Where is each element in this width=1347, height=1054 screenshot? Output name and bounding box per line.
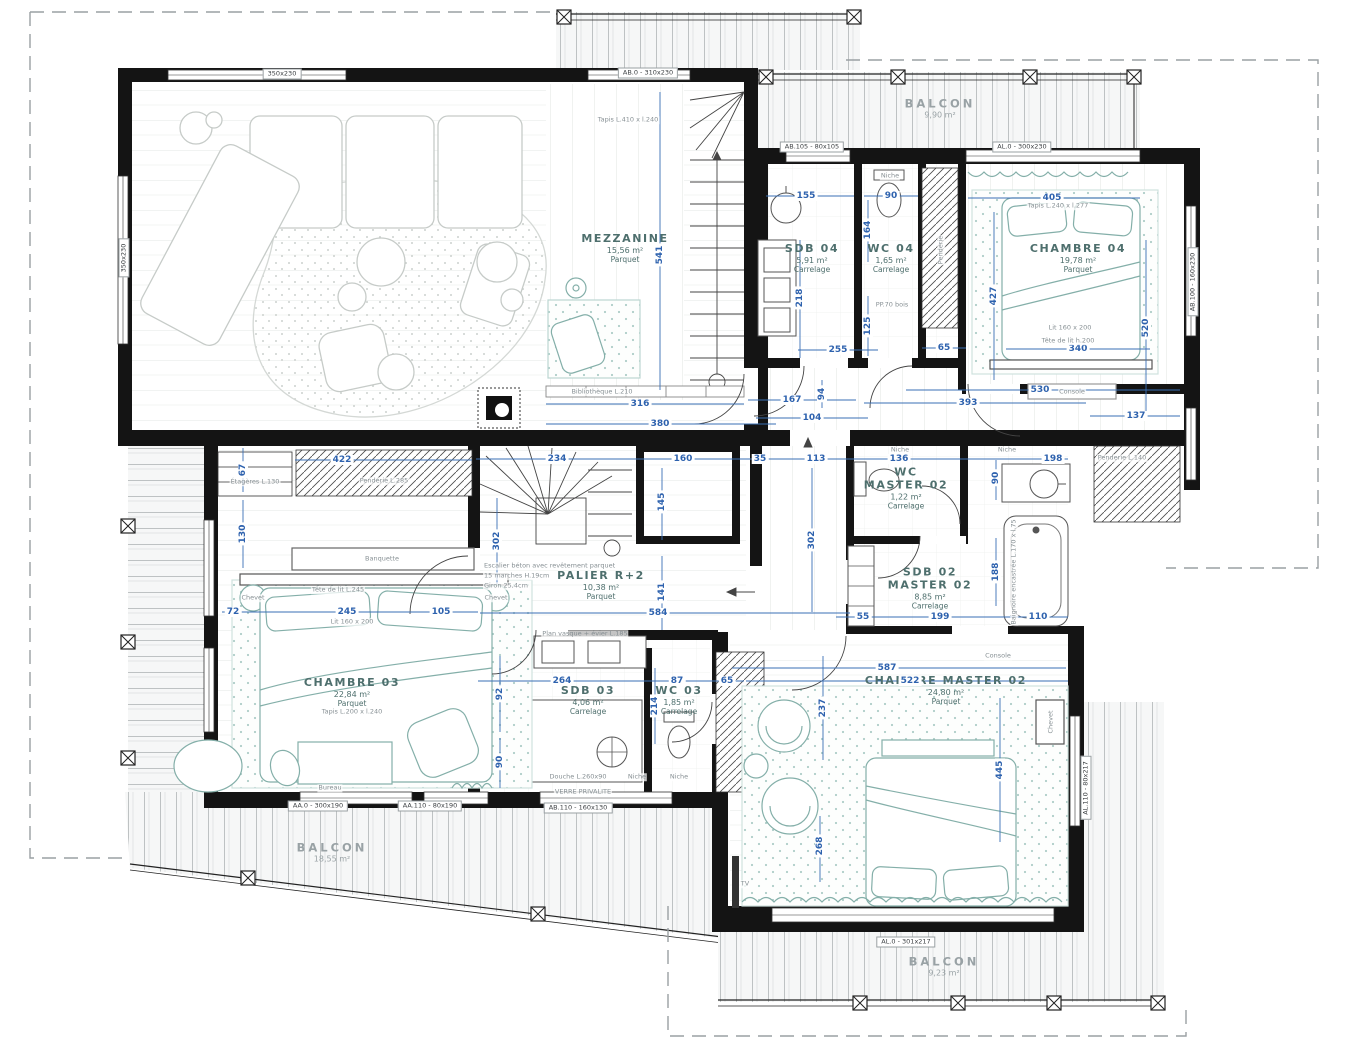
toilet-tank-icon xyxy=(854,462,866,496)
balcony-top-right-deck xyxy=(758,70,1141,150)
pillow-icon xyxy=(1007,201,1068,237)
coffee-table-icon xyxy=(357,238,405,286)
toilet-icon xyxy=(668,726,690,758)
sink-icon xyxy=(1030,470,1058,498)
tv-icon xyxy=(732,856,739,908)
toilet-tank-icon xyxy=(664,712,694,722)
chambre-04-furniture xyxy=(968,172,1158,399)
deck-top-center xyxy=(556,10,861,70)
toilet-icon xyxy=(869,469,899,491)
armchair-icon xyxy=(174,740,242,792)
pillow-icon xyxy=(265,590,371,631)
pillow-icon xyxy=(871,866,936,899)
floor-plan: MEZZANINE15,56 m²ParquetSDB 045,91 m²Car… xyxy=(0,0,1347,1054)
chambre-master-furniture xyxy=(732,686,1068,908)
pillow-icon xyxy=(377,590,483,631)
sink-icon xyxy=(771,193,801,223)
floor-plan-drawing xyxy=(0,0,1347,1054)
toilet-icon xyxy=(877,183,901,217)
headboard-icon xyxy=(240,574,508,585)
banquette-icon xyxy=(292,548,474,570)
toilet-tank-icon xyxy=(874,170,904,180)
chimney-flue-icon xyxy=(478,388,520,428)
bookshelf-icon xyxy=(546,386,744,397)
pillow-icon xyxy=(1073,202,1133,237)
headboard-icon xyxy=(990,360,1152,369)
console-icon xyxy=(1028,384,1116,399)
deck-left-strip xyxy=(121,444,204,794)
desk-icon xyxy=(298,742,392,784)
side-table-icon xyxy=(744,754,768,778)
pillow-icon xyxy=(943,865,1009,900)
bench-icon xyxy=(882,740,994,756)
nightstand-icon xyxy=(1036,700,1064,744)
